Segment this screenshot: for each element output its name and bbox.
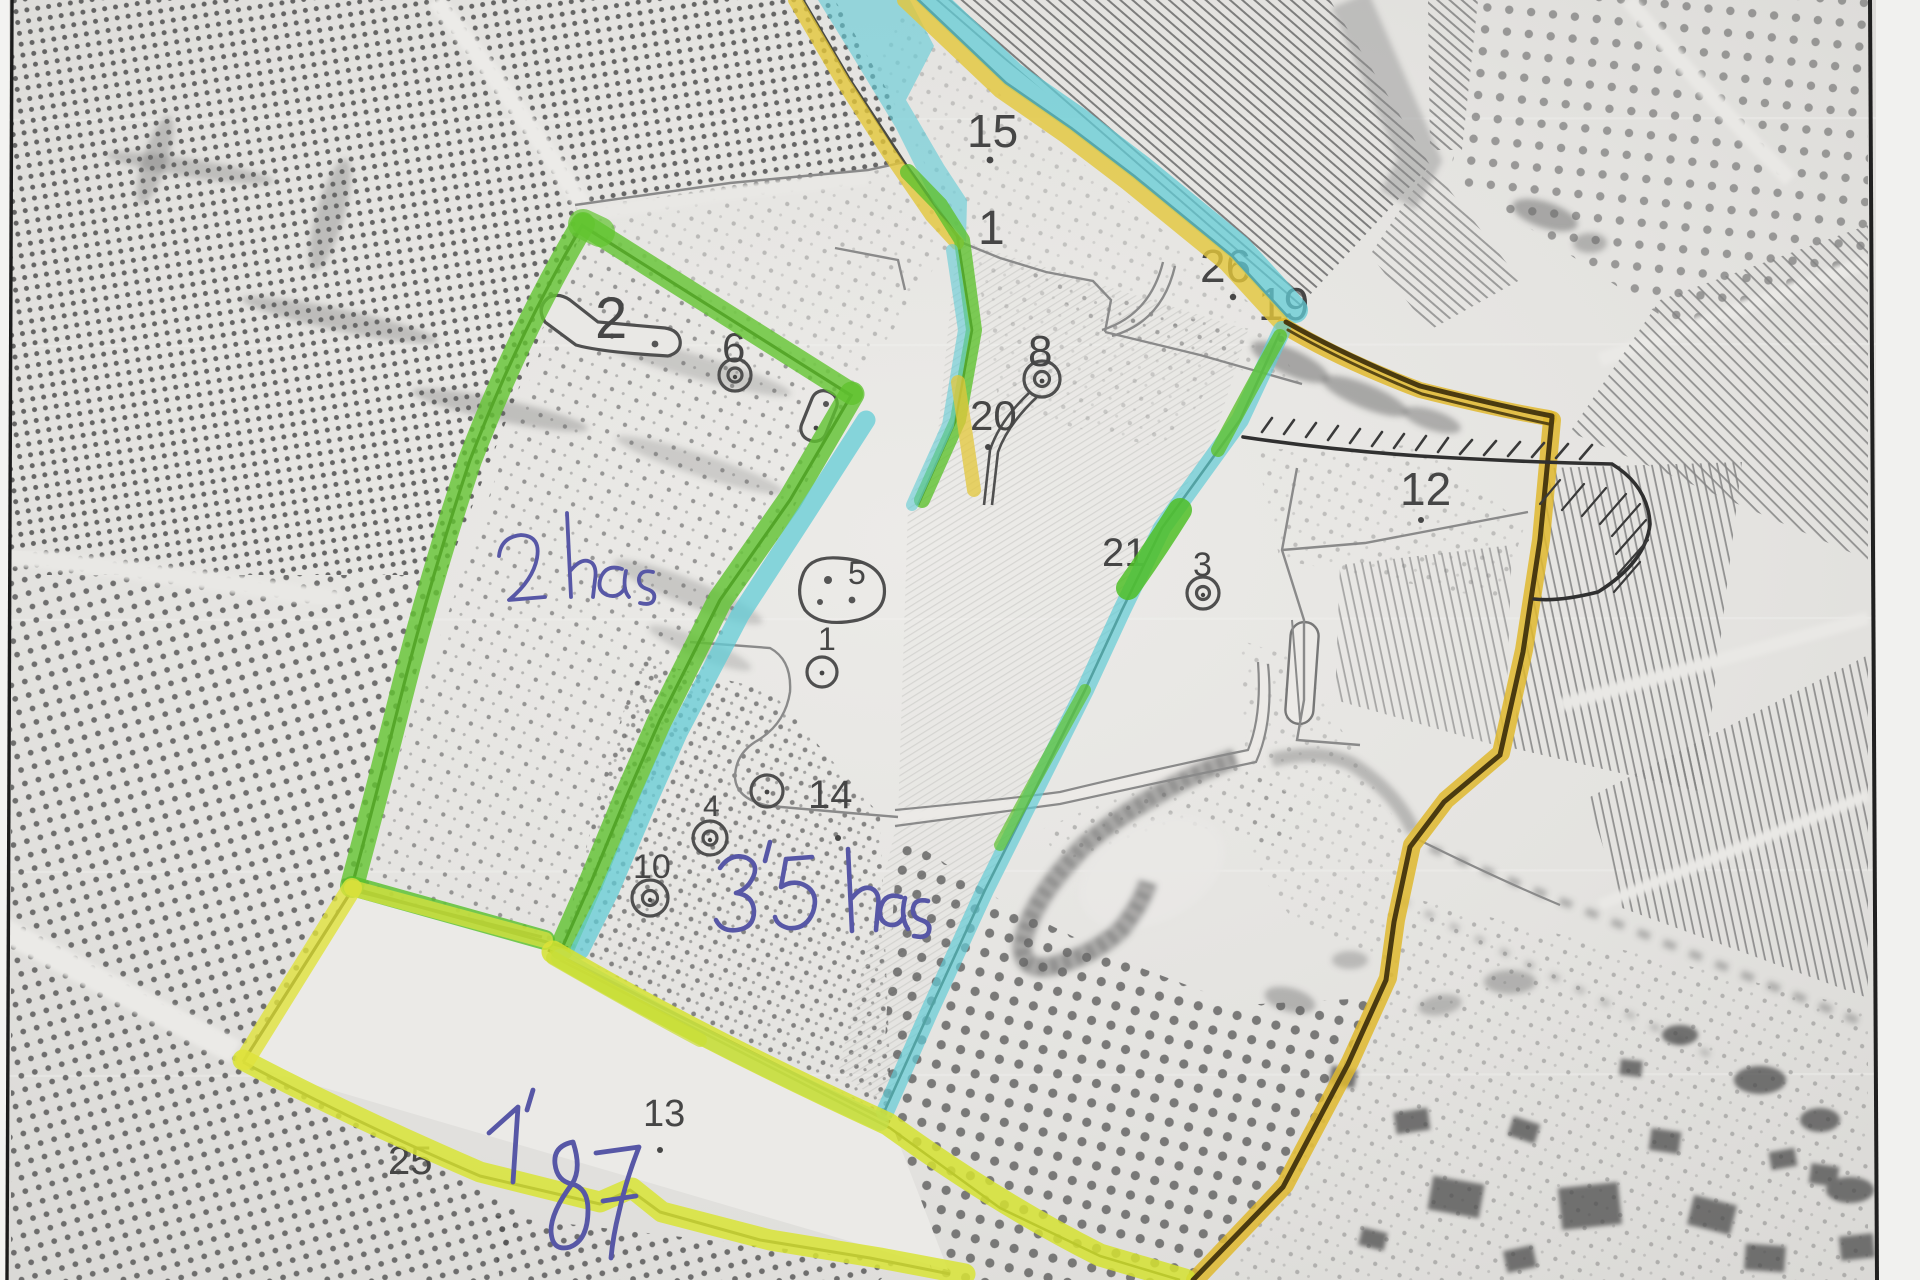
svg-text:15: 15 — [967, 105, 1018, 157]
svg-text:4: 4 — [703, 790, 720, 823]
svg-text:12: 12 — [1400, 463, 1451, 515]
svg-text:1: 1 — [978, 202, 1005, 255]
svg-text:1: 1 — [818, 621, 836, 657]
svg-text:8: 8 — [1028, 327, 1052, 376]
svg-text:14: 14 — [808, 773, 853, 817]
svg-text:13: 13 — [643, 1093, 685, 1135]
svg-text:2: 2 — [595, 286, 627, 351]
svg-text:20: 20 — [970, 392, 1017, 439]
svg-text:5: 5 — [848, 555, 866, 591]
svg-text:10: 10 — [633, 848, 671, 886]
svg-text:3: 3 — [1193, 546, 1212, 584]
